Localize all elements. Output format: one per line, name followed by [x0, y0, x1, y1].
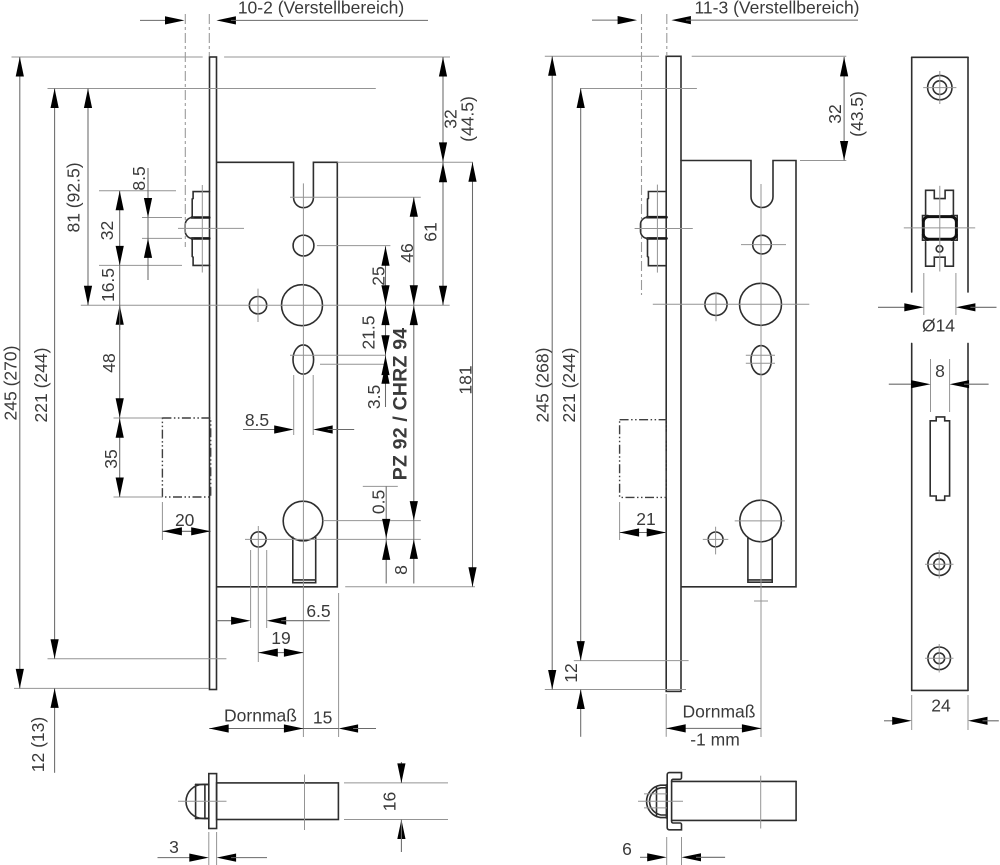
svg-text:PZ 92 / CHRZ 94: PZ 92 / CHRZ 94: [389, 328, 411, 481]
svg-text:46: 46: [397, 243, 417, 262]
svg-text:12: 12: [561, 663, 581, 682]
svg-text:35: 35: [101, 449, 121, 468]
svg-text:181: 181: [456, 365, 476, 394]
svg-text:15: 15: [313, 708, 332, 728]
svg-text:12 (13): 12 (13): [28, 717, 48, 772]
svg-text:16.5: 16.5: [98, 268, 118, 302]
svg-text:8.5: 8.5: [245, 410, 269, 430]
svg-text:Dornmaß: Dornmaß: [224, 706, 297, 726]
svg-text:19: 19: [271, 628, 290, 648]
svg-text:Ø14: Ø14: [922, 316, 955, 336]
svg-text:8: 8: [391, 565, 411, 575]
svg-text:32: 32: [825, 104, 845, 123]
svg-text:21: 21: [636, 509, 655, 529]
svg-text:245 (270): 245 (270): [1, 346, 21, 421]
svg-text:245 (268): 245 (268): [533, 348, 553, 423]
svg-text:16: 16: [380, 792, 400, 811]
svg-text:21.5: 21.5: [359, 315, 379, 349]
svg-text:20: 20: [175, 510, 195, 530]
svg-text:6: 6: [622, 839, 632, 859]
svg-text:61: 61: [420, 222, 440, 241]
svg-text:Dornmaß: Dornmaß: [683, 702, 756, 722]
svg-text:3: 3: [169, 837, 179, 857]
svg-text:6.5: 6.5: [306, 601, 330, 621]
svg-text:3.5: 3.5: [364, 385, 384, 409]
svg-text:10-2 (Verstellbereich): 10-2 (Verstellbereich): [238, 0, 404, 18]
svg-text:221 (244): 221 (244): [31, 348, 51, 423]
svg-text:8.5: 8.5: [129, 166, 149, 190]
svg-text:8: 8: [935, 361, 945, 381]
svg-text:32: 32: [97, 221, 117, 240]
svg-text:81 (92.5): 81 (92.5): [64, 162, 84, 232]
svg-text:(44.5): (44.5): [457, 96, 477, 142]
svg-text:24: 24: [931, 696, 951, 716]
svg-text:221 (244): 221 (244): [559, 348, 579, 423]
svg-text:(43.5): (43.5): [847, 91, 867, 137]
svg-text:-1 mm: -1 mm: [690, 730, 740, 750]
svg-text:48: 48: [99, 353, 119, 372]
svg-text:11-3 (Verstellbereich): 11-3 (Verstellbereich): [694, 0, 859, 18]
svg-text:25: 25: [368, 266, 388, 285]
svg-text:0.5: 0.5: [368, 490, 388, 514]
